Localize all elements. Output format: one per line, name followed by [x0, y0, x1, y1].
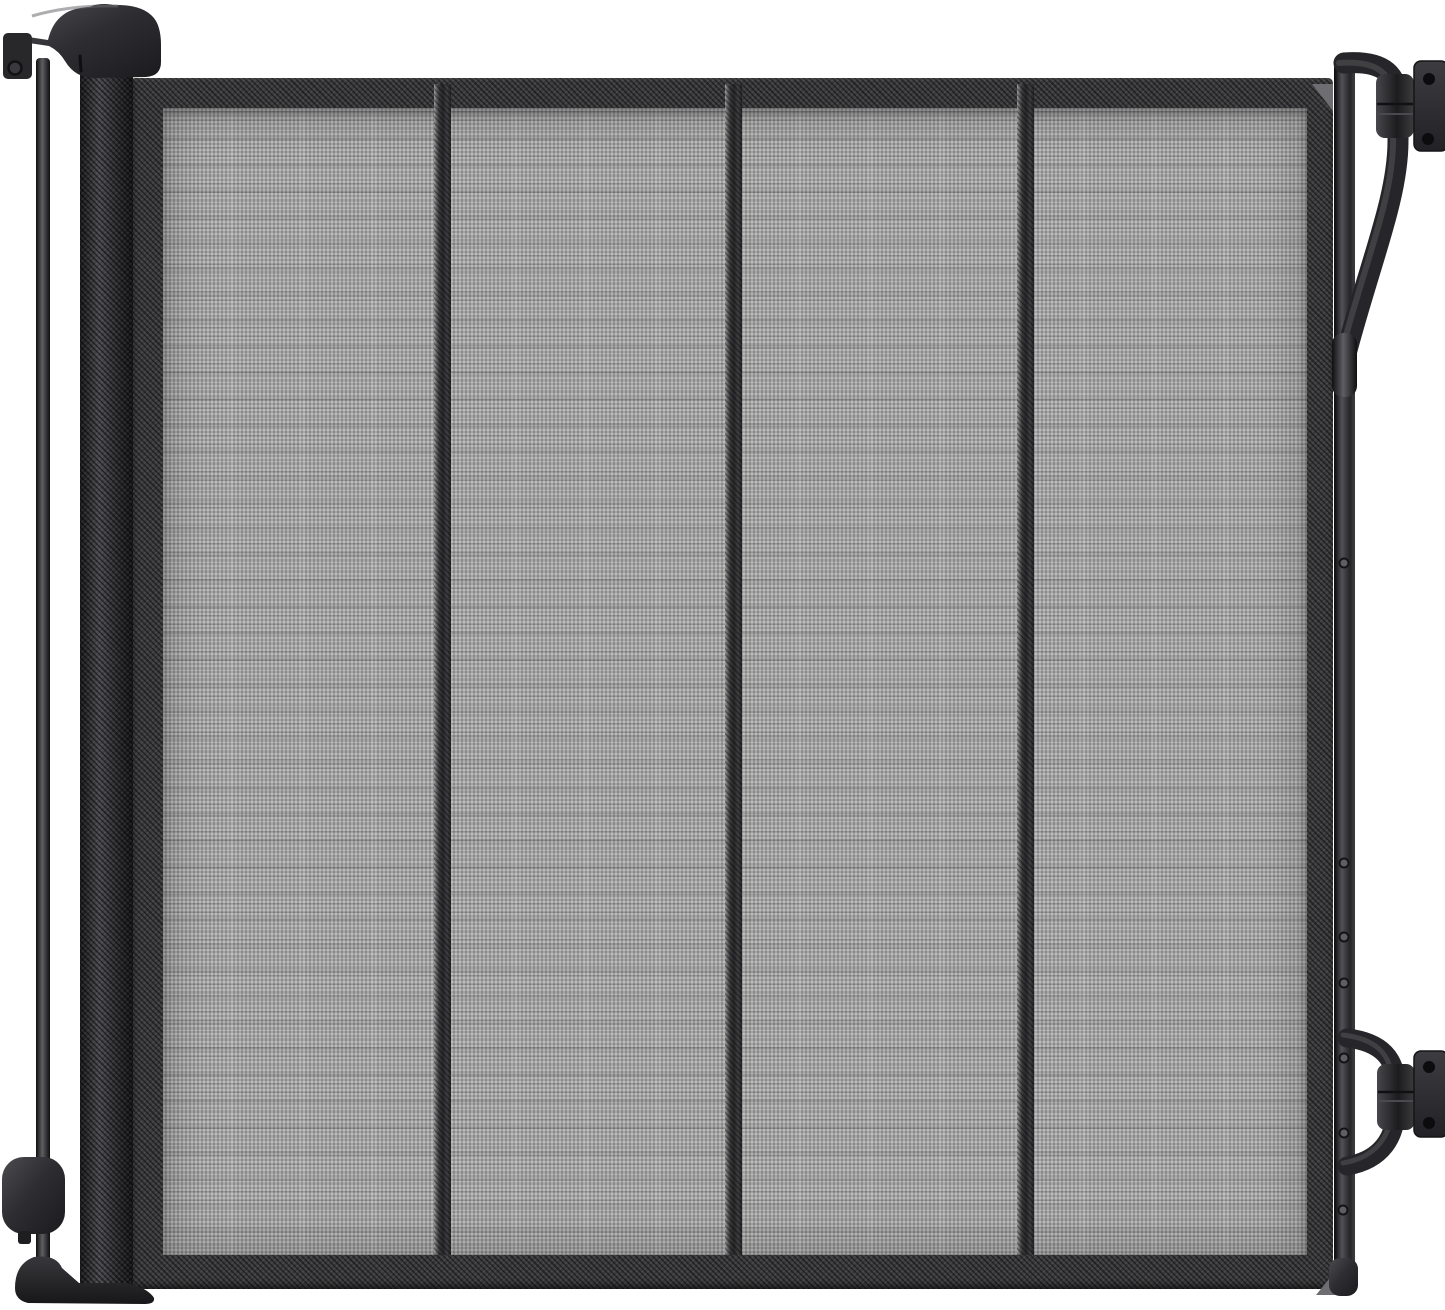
screw	[1339, 1206, 1348, 1215]
top-cap-seam	[80, 56, 81, 71]
top-hinge-cylinder	[1376, 74, 1414, 138]
floor-foot	[15, 1256, 154, 1304]
screw	[1340, 1129, 1349, 1138]
wall-plate-top-hole-1	[1423, 73, 1435, 85]
bracket-screw	[9, 62, 22, 75]
pole-clamp-nub	[18, 1231, 31, 1244]
wall-plate-bottom-hole-2	[1423, 1117, 1435, 1129]
wall-plate-top-hole-2	[1422, 133, 1434, 145]
product-photo-retractable-gate	[0, 0, 1445, 1310]
screw	[1340, 559, 1349, 568]
tension-pole	[36, 58, 50, 1273]
screw	[1340, 859, 1349, 868]
latch-bar-collar	[1332, 333, 1357, 397]
screw	[1340, 933, 1349, 942]
pole-clamp	[2, 1157, 65, 1234]
hardware-overlay	[0, 0, 1445, 1310]
screw	[1340, 1054, 1349, 1063]
frame-corner-wedge-top	[1312, 84, 1333, 111]
screw	[1340, 979, 1349, 988]
wall-plate-bottom-hole-1	[1423, 1061, 1435, 1073]
latch-bar-foot	[1329, 1258, 1358, 1296]
latch-bar-screws	[1339, 559, 1349, 1215]
bottom-hinge-cylinder	[1377, 1064, 1415, 1130]
